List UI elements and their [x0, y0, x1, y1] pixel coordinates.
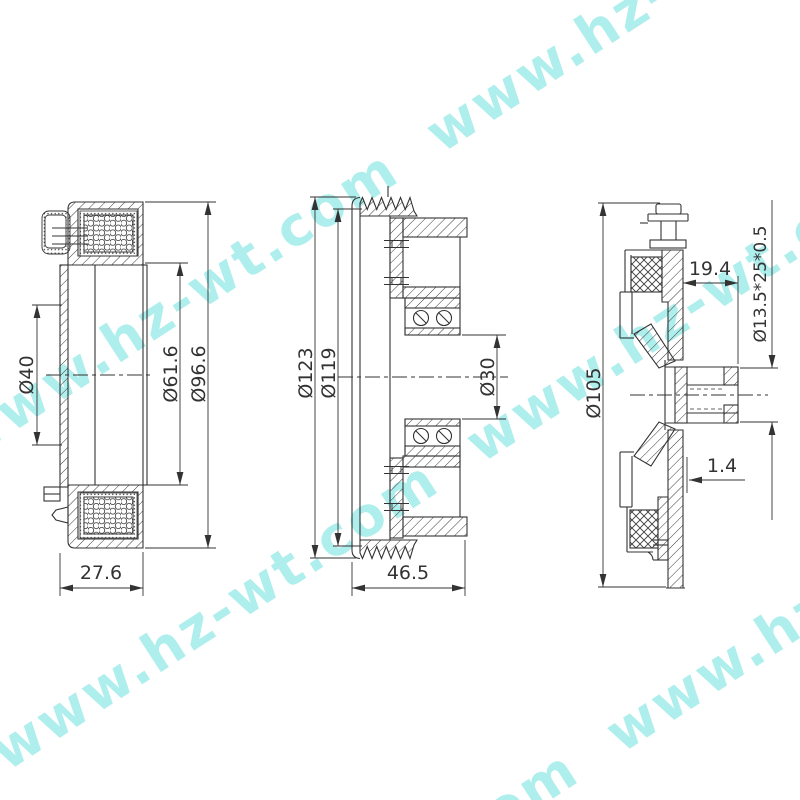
dim-label-spec: Ø13.5*25*0.5: [751, 226, 771, 343]
dim-label-d40: Ø40: [16, 355, 38, 394]
drawing-canvas: www.hz-wt.comwww.hz-wt.comwww.hz-wt.com …: [0, 0, 800, 800]
dim-label-d61: Ø61.6: [160, 345, 182, 402]
dim-label-w194: 19.4: [689, 258, 731, 280]
dim-label-d96: Ø96.6: [188, 345, 210, 402]
dim-label-d123: Ø123: [295, 347, 317, 398]
dim-label-gap: 1.4: [707, 455, 737, 477]
dim-label-d30: Ø30: [477, 357, 499, 396]
dim-label-d105: Ø105: [583, 367, 605, 418]
dim-label-d119: Ø119: [318, 347, 340, 398]
left-view-coil: [42, 202, 152, 548]
dim-label-w465: 46.5: [387, 562, 429, 584]
technical-drawing: Ø40 Ø61.6 Ø96.6 27.6: [0, 0, 800, 800]
dim-label-w276: 27.6: [80, 562, 122, 584]
